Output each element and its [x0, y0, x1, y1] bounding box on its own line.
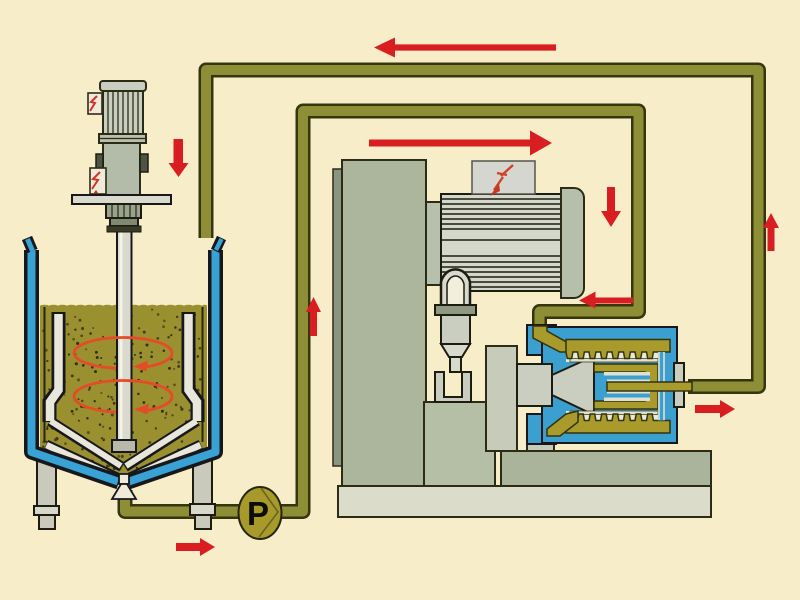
svg-text:P: P: [247, 495, 269, 532]
